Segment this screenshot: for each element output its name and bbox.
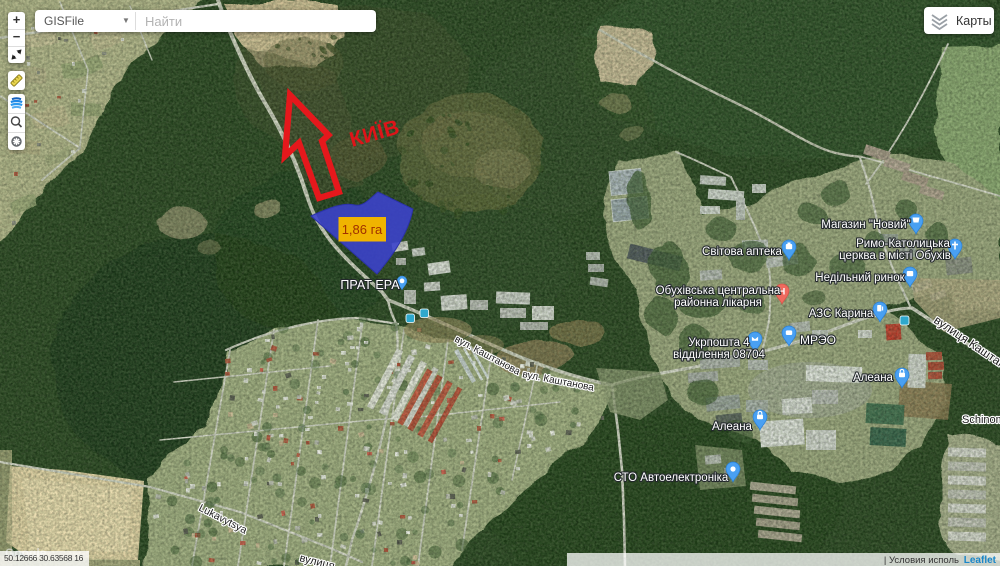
svg-text:Обухівська центральна: Обухівська центральна	[656, 285, 781, 297]
svg-text:МРЭО: МРЭО	[800, 333, 836, 347]
svg-text:ПРАТ ЕРА: ПРАТ ЕРА	[340, 278, 400, 292]
svg-text:районна лікарня: районна лікарня	[674, 297, 762, 309]
svg-text:відділення 08704: відділення 08704	[673, 349, 765, 361]
svg-text:церква в місті Обухів: церква в місті Обухів	[839, 250, 951, 262]
svg-text:Римо-Католицька: Римо-Католицька	[856, 238, 950, 250]
svg-text:Світова аптека: Світова аптека	[702, 246, 783, 258]
svg-text:Магазин "Новий": Магазин "Новий"	[821, 219, 910, 231]
svg-text:Недільний ринок: Недільний ринок	[815, 272, 905, 284]
svg-text:Алеана: Алеана	[853, 372, 894, 384]
svg-text:Schinom: Schinom	[962, 414, 1000, 426]
svg-text:1,86 га: 1,86 га	[342, 222, 383, 237]
svg-text:Укрпошта 4: Укрпошта 4	[688, 337, 750, 349]
svg-text:Алеана: Алеана	[712, 421, 753, 433]
svg-text:АЗС Карина: АЗС Карина	[809, 308, 874, 320]
svg-text:СТО Автоелектроніка: СТО Автоелектроніка	[614, 472, 729, 484]
